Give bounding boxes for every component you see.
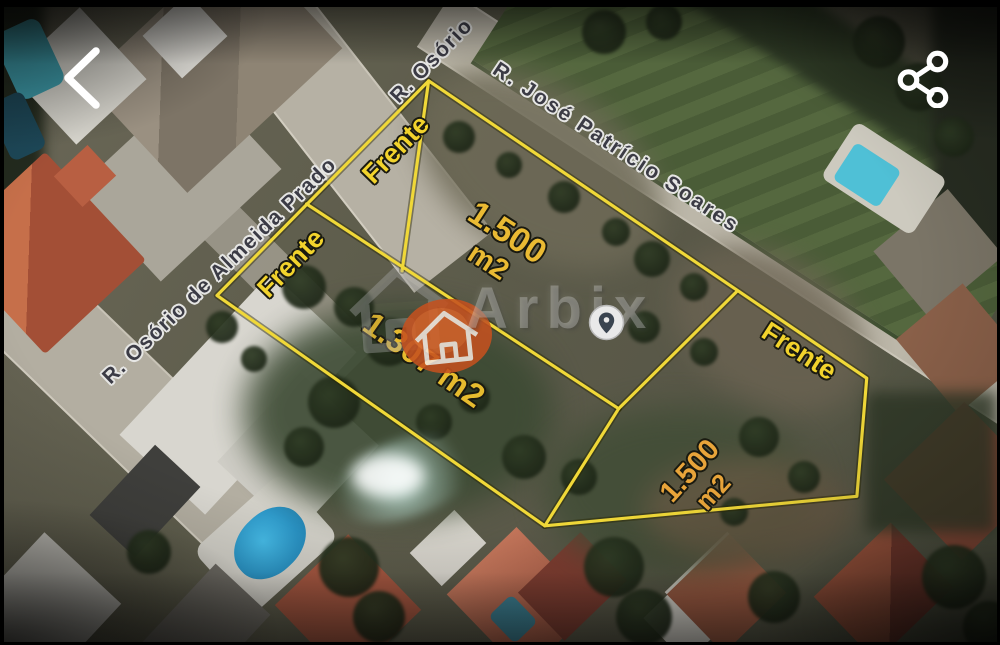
tree xyxy=(127,530,171,574)
share-icon xyxy=(893,46,955,108)
chevron-left-icon xyxy=(59,46,103,110)
satellite-map-photo: R. Osório de Almeida Prado R. Osório R. … xyxy=(4,7,997,642)
tree xyxy=(308,376,360,428)
tree xyxy=(934,117,974,157)
tree xyxy=(353,591,405,642)
tree xyxy=(502,435,546,479)
tree xyxy=(582,10,626,54)
property-photo-viewer: R. Osório de Almeida Prado R. Osório R. … xyxy=(0,0,1000,645)
tree xyxy=(496,152,522,178)
tree xyxy=(690,338,718,366)
tree xyxy=(319,537,379,597)
tree xyxy=(206,311,238,343)
tree xyxy=(548,181,580,213)
tree xyxy=(241,346,267,372)
tree xyxy=(284,427,324,467)
watermark-brand: Arbix xyxy=(466,275,654,342)
tree xyxy=(748,571,800,623)
tree xyxy=(634,241,670,277)
tree xyxy=(602,218,630,246)
tree xyxy=(680,273,708,301)
tree xyxy=(584,537,644,597)
tree xyxy=(616,589,672,642)
share-button[interactable] xyxy=(888,42,960,114)
map-pin-marker xyxy=(588,304,625,341)
tree xyxy=(561,459,597,495)
vegetation-patch xyxy=(866,392,996,532)
back-button[interactable] xyxy=(46,36,116,122)
camera-glare xyxy=(352,455,424,497)
tree xyxy=(922,545,986,609)
tree xyxy=(443,121,475,153)
tree xyxy=(963,601,997,642)
house-roof xyxy=(4,532,121,642)
tree xyxy=(788,461,820,493)
